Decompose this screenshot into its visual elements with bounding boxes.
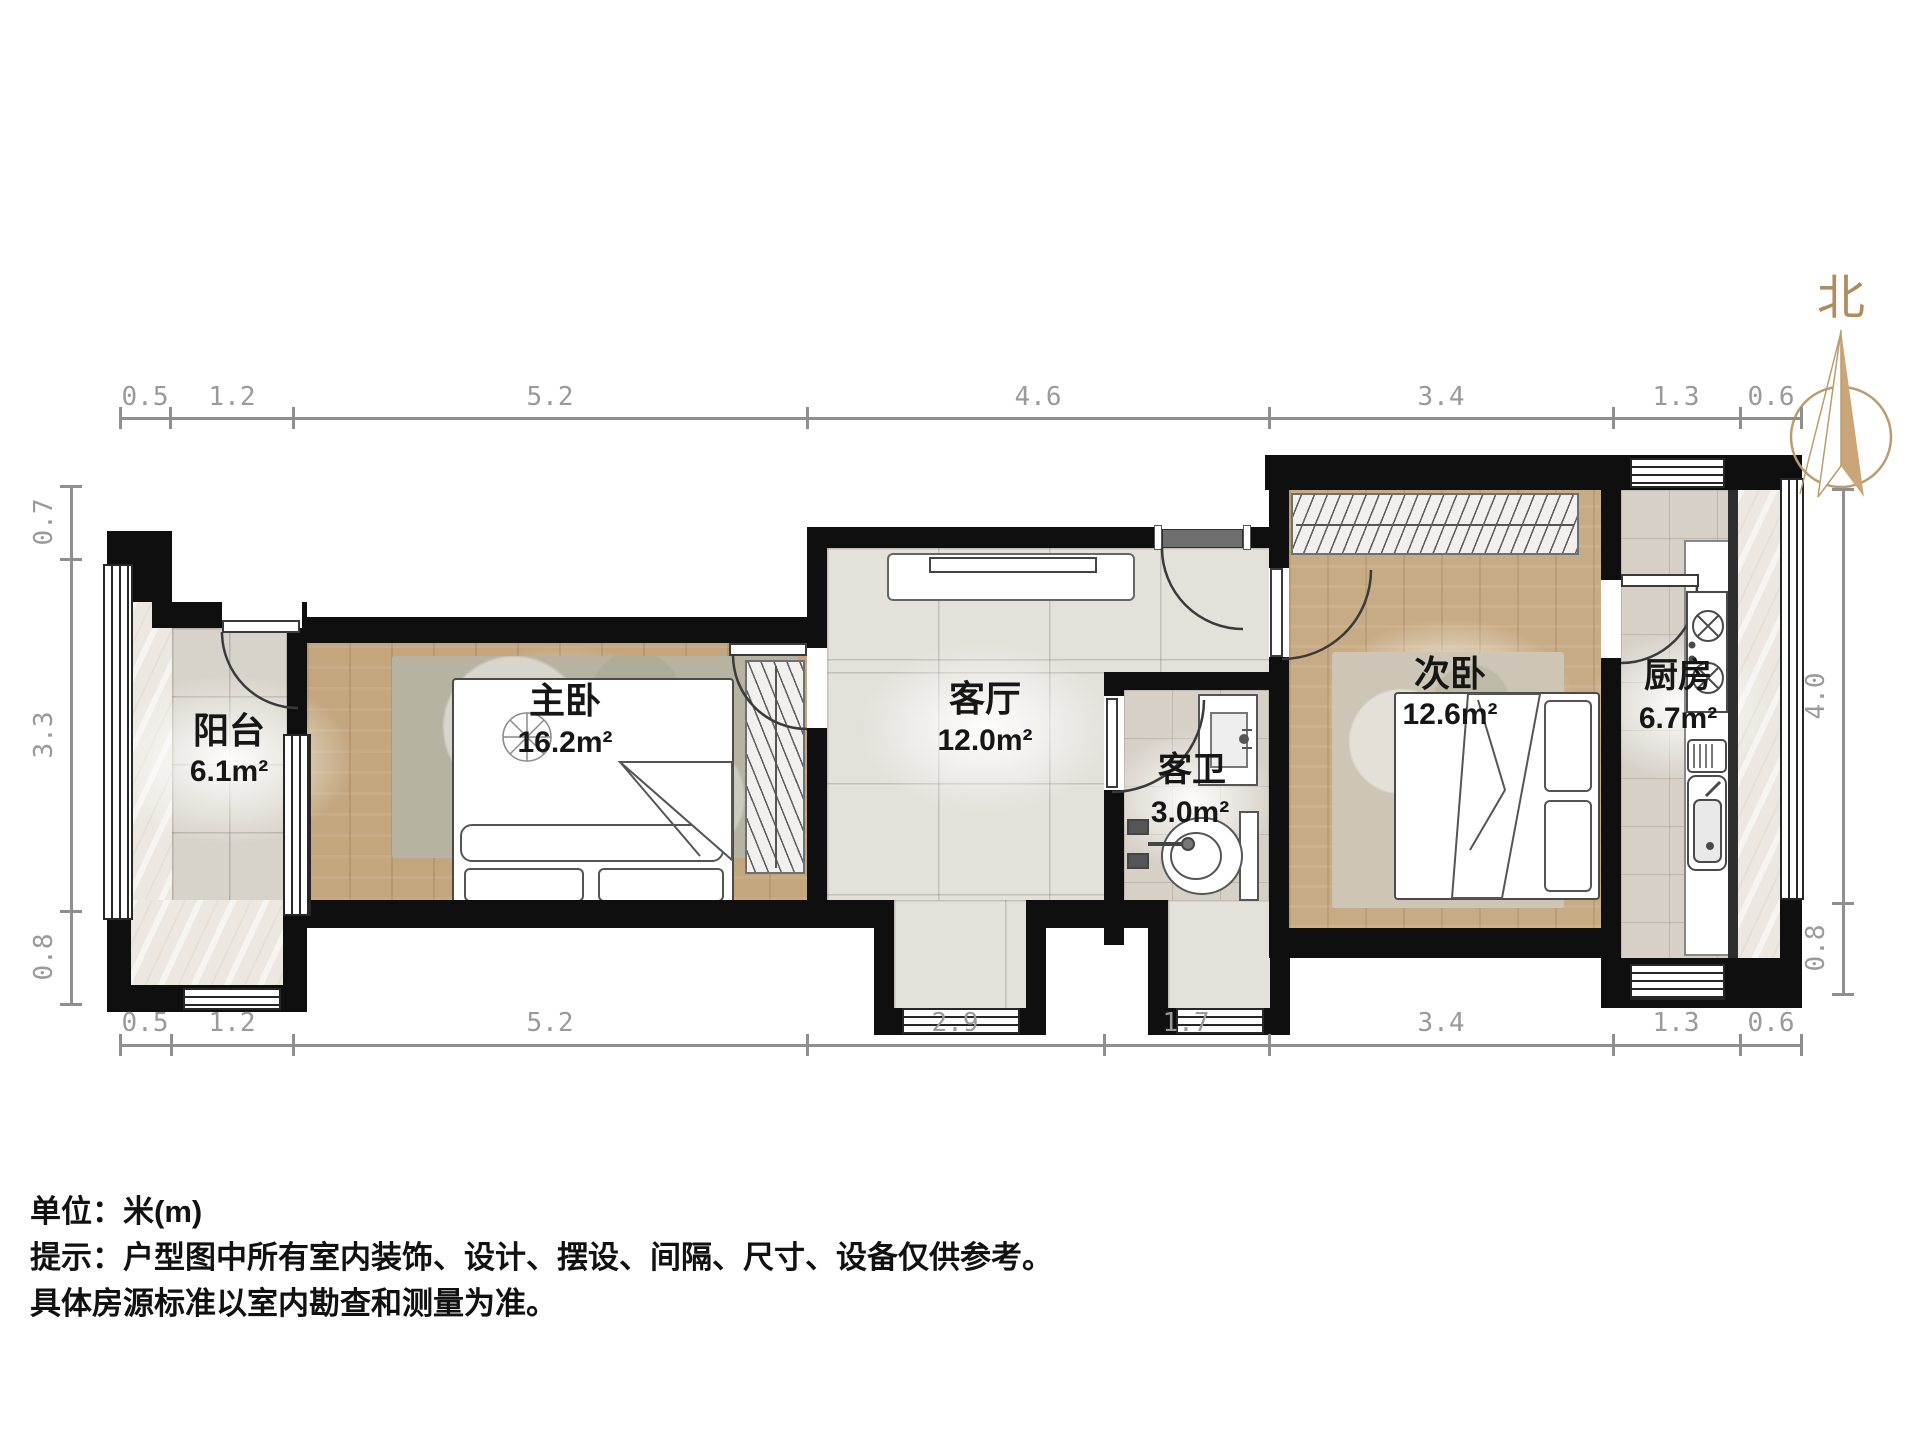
bathroom-top-wall — [1104, 672, 1289, 690]
dim-line-right — [1842, 489, 1845, 995]
bathroom-area: 3.0m² — [1151, 796, 1229, 830]
tick — [292, 407, 295, 429]
dim-top-0: 0.5 — [122, 382, 169, 412]
tick — [806, 407, 809, 429]
master-bed-pillow-right — [598, 868, 724, 902]
dim-bottom-6: 1.3 — [1653, 1008, 1700, 1038]
master-bedroom-label: 主卧 — [529, 672, 601, 724]
balcony-divider-wall — [287, 628, 307, 734]
living-room-label: 客厅 — [949, 670, 1021, 722]
tick — [1612, 1034, 1615, 1056]
living-room-area: 12.0m² — [937, 724, 1032, 758]
entrance-jamb-right — [1243, 525, 1251, 550]
dim-bottom-1: 1.2 — [209, 1008, 256, 1038]
dim-right-1: 0.8 — [1801, 925, 1831, 972]
bay2-floor — [1168, 900, 1270, 1008]
dim-left-0: 0.7 — [29, 499, 59, 546]
floorplan-page: { "title":"户型图", "compass":{"label":"北"}… — [0, 0, 1921, 1440]
balcony-lower-floor — [131, 900, 287, 985]
tick — [1832, 993, 1854, 996]
dim-top-4: 3.4 — [1418, 382, 1465, 412]
second-bed-pillow-bottom — [1544, 800, 1592, 892]
balcony-door — [222, 620, 300, 633]
dim-top-3: 4.6 — [1015, 382, 1062, 412]
dim-top-5: 1.3 — [1653, 382, 1700, 412]
tick — [169, 407, 172, 429]
living-top-wall — [807, 527, 1162, 548]
kitchen-label: 厨房 — [1644, 648, 1712, 697]
tick — [60, 558, 82, 561]
dim-top-2: 5.2 — [527, 382, 574, 412]
balcony-label: 阳台 — [193, 702, 265, 754]
dim-bottom-2: 5.2 — [527, 1008, 574, 1038]
compass-needle-west — [1818, 330, 1841, 497]
balcony-top-wall-left — [152, 602, 222, 628]
tick — [1103, 1034, 1106, 1056]
tick — [292, 1034, 295, 1056]
kitchen-door-opening — [1601, 580, 1621, 658]
dim-left-2: 0.8 — [29, 934, 59, 981]
north-compass — [1791, 330, 1891, 497]
bottom-wall-master — [287, 900, 894, 928]
master-bed-bolster — [460, 824, 724, 862]
tip-note-line2: 具体房源标准以室内勘查和测量为准。 — [30, 1278, 557, 1323]
balcony-bottom-corner — [283, 900, 307, 1012]
second-bedroom-wardrobe — [1291, 493, 1579, 555]
second-bed-pillow-top — [1544, 700, 1592, 792]
dim-bottom-5: 3.4 — [1418, 1008, 1465, 1038]
north-indicator-label: 北 — [1817, 258, 1865, 328]
master-door-opening — [807, 648, 827, 728]
bathroom-left-wall-upper — [1104, 672, 1124, 696]
entrance-door — [1162, 529, 1243, 548]
master-top-wall — [287, 617, 827, 643]
second-bedroom-area: 12.6m² — [1402, 698, 1497, 732]
tick — [1268, 1034, 1271, 1056]
second-bedroom-label: 次卧 — [1414, 645, 1486, 697]
compass-needle-east — [1841, 330, 1864, 497]
second-bedroom-door — [1270, 568, 1283, 657]
tick — [170, 1034, 173, 1056]
kitchen-bottom-window — [1630, 964, 1725, 1000]
dim-top-1: 1.2 — [209, 382, 256, 412]
bathroom-door — [1106, 698, 1118, 788]
dim-bottom-3: 2.9 — [932, 1008, 979, 1038]
dim-bottom-7: 0.6 — [1748, 1008, 1795, 1038]
dim-left-1: 3.3 — [29, 712, 59, 759]
dim-top-6: 0.6 — [1748, 382, 1795, 412]
bay1-floor — [894, 900, 1026, 1008]
tick — [806, 1034, 809, 1056]
tick — [1739, 1034, 1742, 1056]
bed2-kitchen-wall-lower — [1601, 658, 1621, 958]
kitchen-counter — [1684, 540, 1730, 956]
tick — [1832, 488, 1854, 491]
bathroom-label: 客卫 — [1158, 742, 1226, 791]
tick — [1268, 407, 1271, 429]
tick — [1739, 407, 1742, 429]
unit-note: 单位：米(m) — [30, 1186, 202, 1231]
kitchen-top-window — [1630, 458, 1725, 488]
tip-note-line1: 提示：户型图中所有室内装饰、设计、摆设、间隔、尺寸、设备仅供参考。 — [30, 1232, 1053, 1277]
master-wardrobe — [745, 660, 805, 874]
dim-line-top — [120, 417, 1802, 420]
master-bedroom-area: 16.2m² — [517, 726, 612, 760]
entrance-jamb-left — [1154, 525, 1162, 550]
second-bedroom-bottom-wall — [1269, 928, 1621, 958]
dim-right-0: 4.0 — [1801, 673, 1831, 720]
kitchen-door — [1621, 574, 1699, 587]
wardrobe-rail-2 — [1296, 524, 1574, 526]
tick — [60, 910, 82, 913]
balcony-left-window — [103, 564, 133, 920]
tick — [1800, 407, 1803, 429]
bed2-kitchen-wall-upper — [1601, 490, 1621, 580]
dim-bottom-4: 1.7 — [1163, 1008, 1210, 1038]
dim-line-left — [70, 486, 73, 1005]
dim-bottom-0: 0.5 — [122, 1008, 169, 1038]
tick — [1612, 407, 1615, 429]
tv-screen — [929, 557, 1097, 573]
bottom-wall-bath-right — [1270, 900, 1289, 928]
kitchen-area: 6.7m² — [1639, 702, 1717, 736]
wardrobe-rail — [775, 666, 777, 868]
tick — [60, 1003, 82, 1006]
balcony-bottom-window — [183, 988, 281, 1010]
tick — [1800, 1034, 1803, 1056]
bottom-wall-center — [1026, 900, 1168, 928]
master-bedroom-door — [729, 643, 807, 656]
kitchen-strip-divider — [1728, 490, 1738, 958]
balcony-master-window — [283, 734, 311, 916]
master-living-wall-lower — [807, 728, 827, 900]
tick — [60, 485, 82, 488]
balcony-area: 6.1m² — [190, 755, 268, 789]
tick — [1832, 902, 1854, 905]
dim-line-bottom — [120, 1044, 1802, 1047]
master-bed-pillow-left — [464, 868, 584, 902]
